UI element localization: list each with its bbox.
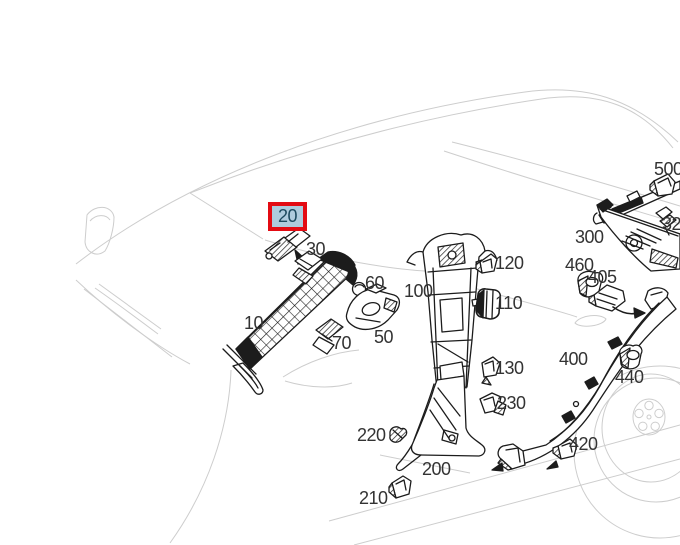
part-label-440[interactable]: 440 xyxy=(615,366,644,388)
part-label-200[interactable]: 200 xyxy=(422,458,451,480)
part-label-320[interactable]: 320 xyxy=(662,213,680,235)
part-label-70[interactable]: 70 xyxy=(332,332,351,354)
part-label-405[interactable]: 405 xyxy=(588,266,617,288)
part-label-100[interactable]: 100 xyxy=(404,280,433,302)
b-pillar-lower-trim-200-art xyxy=(396,362,484,470)
part-label-230[interactable]: 230 xyxy=(497,392,526,414)
parts-diagram-canvas: 20 30 10 60 50 70 100 120 110 130 230 22… xyxy=(0,0,680,545)
part-label-400[interactable]: 400 xyxy=(559,348,588,370)
part-label-420[interactable]: 420 xyxy=(569,433,598,455)
clip-220-art xyxy=(390,427,407,442)
part-label-210[interactable]: 210 xyxy=(359,487,388,509)
part-label-300[interactable]: 300 xyxy=(575,226,604,248)
part-label-500[interactable]: 500 xyxy=(654,158,680,180)
clip-210-art xyxy=(389,476,411,498)
part-label-50[interactable]: 50 xyxy=(374,326,393,348)
part-label-110[interactable]: 110 xyxy=(495,292,522,314)
part-label-30[interactable]: 30 xyxy=(306,238,325,260)
part-label-20-highlighted[interactable]: 20 xyxy=(268,202,307,231)
part-label-130[interactable]: 130 xyxy=(495,357,524,379)
part-label-120[interactable]: 120 xyxy=(495,252,524,274)
part-label-10[interactable]: 10 xyxy=(244,312,263,334)
part-label-220[interactable]: 220 xyxy=(357,424,386,446)
part-label-60[interactable]: 60 xyxy=(365,272,384,294)
